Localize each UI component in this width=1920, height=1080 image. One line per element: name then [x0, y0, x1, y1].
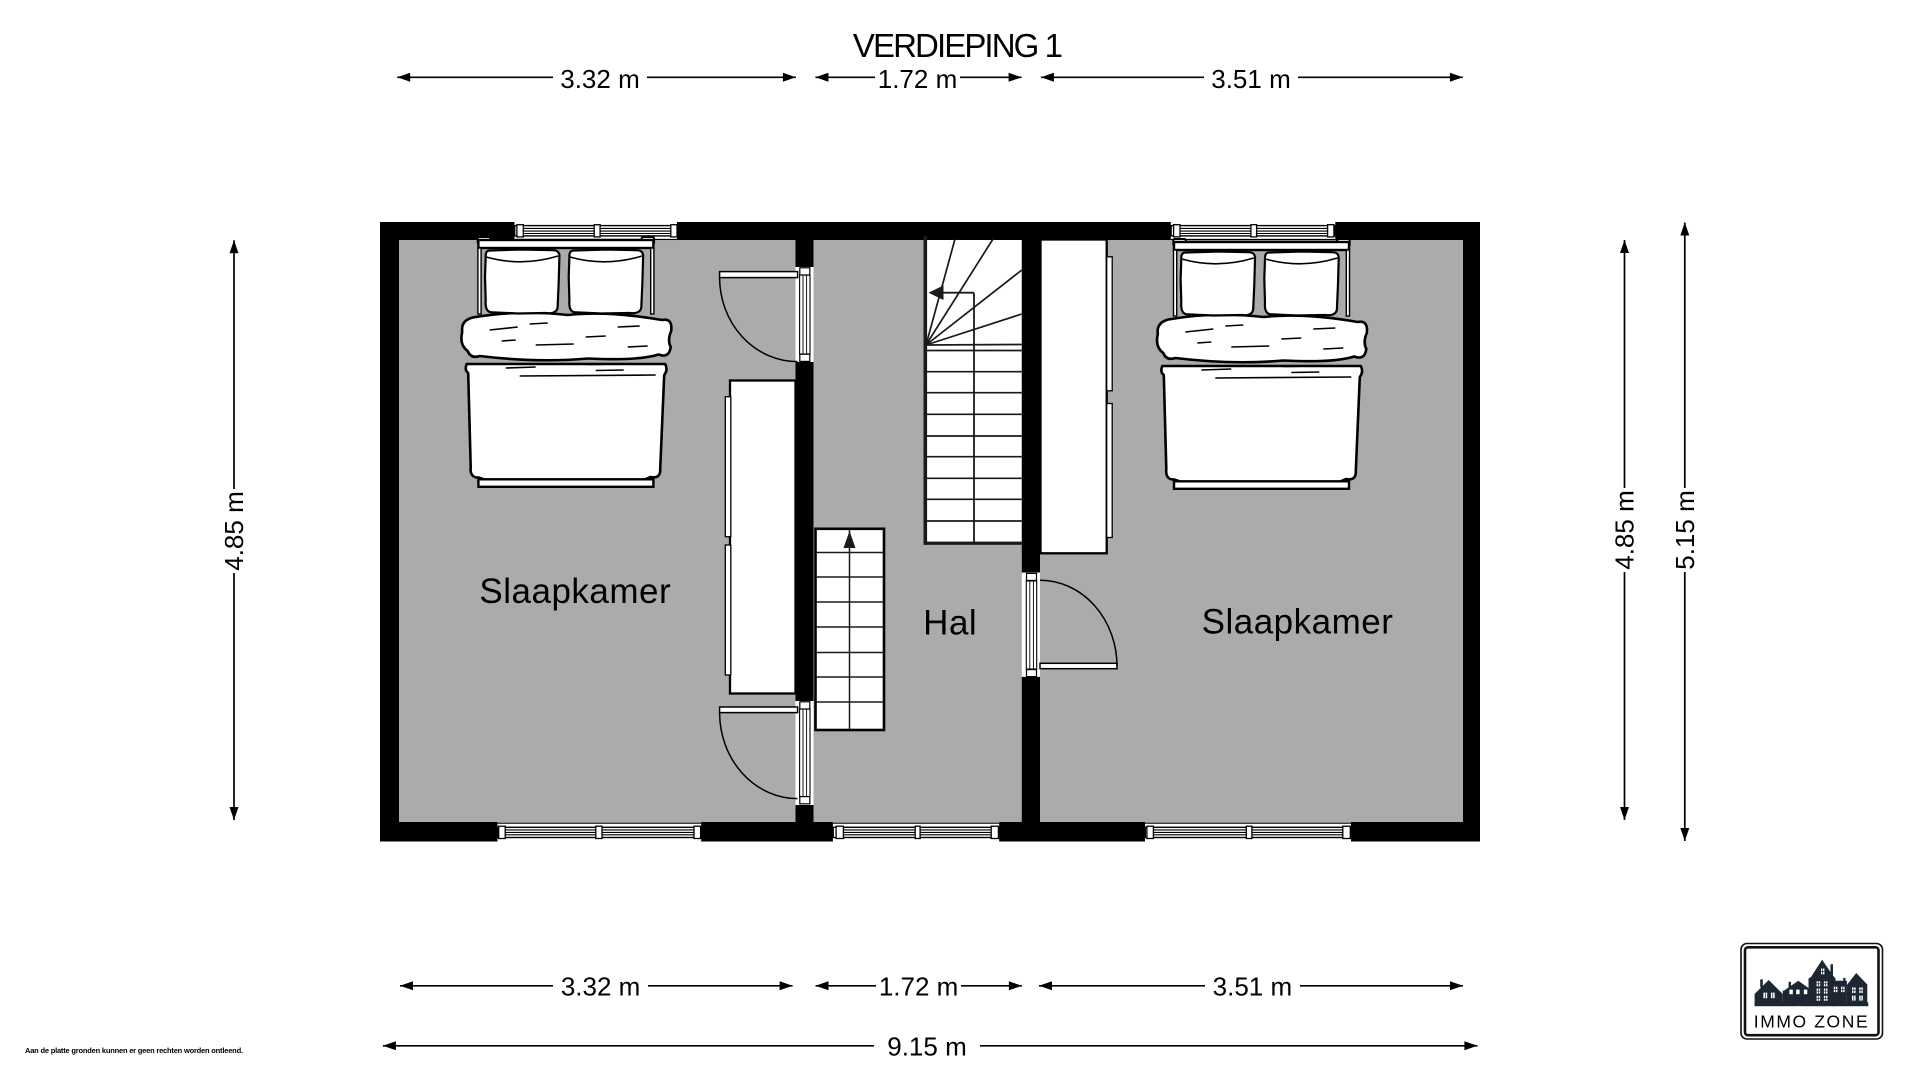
svg-text:4.85 m: 4.85 m	[219, 491, 249, 571]
svg-text:3.32 m: 3.32 m	[560, 64, 640, 94]
svg-text:Aan de platte gronden kunnen e: Aan de platte gronden kunnen er geen rec…	[25, 1046, 243, 1055]
svg-text:1.72 m: 1.72 m	[878, 64, 958, 94]
svg-text:Slaapkamer: Slaapkamer	[1202, 603, 1394, 642]
svg-text:3.51 m: 3.51 m	[1211, 64, 1291, 94]
svg-text:1.72 m: 1.72 m	[879, 972, 959, 1002]
svg-text:Hal: Hal	[923, 604, 977, 643]
svg-text:9.15 m: 9.15 m	[887, 1032, 967, 1062]
svg-text:5.15 m: 5.15 m	[1670, 490, 1700, 570]
svg-text:4.85 m: 4.85 m	[1610, 490, 1640, 570]
svg-text:IMMO ZONE: IMMO ZONE	[1754, 1012, 1870, 1032]
svg-text:3.32 m: 3.32 m	[561, 972, 641, 1002]
svg-text:Slaapkamer: Slaapkamer	[479, 572, 671, 611]
svg-text:3.51 m: 3.51 m	[1213, 972, 1293, 1002]
svg-text:VERDIEPING 1: VERDIEPING 1	[853, 27, 1062, 64]
